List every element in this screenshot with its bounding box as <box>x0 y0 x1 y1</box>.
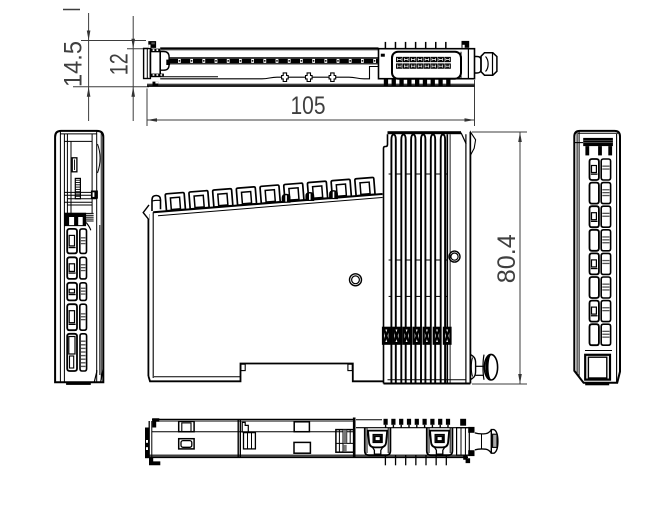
svg-text:80.4: 80.4 <box>493 234 521 283</box>
svg-text:14.5: 14.5 <box>60 41 88 87</box>
svg-text:105: 105 <box>291 92 326 120</box>
svg-text:12: 12 <box>105 53 133 75</box>
